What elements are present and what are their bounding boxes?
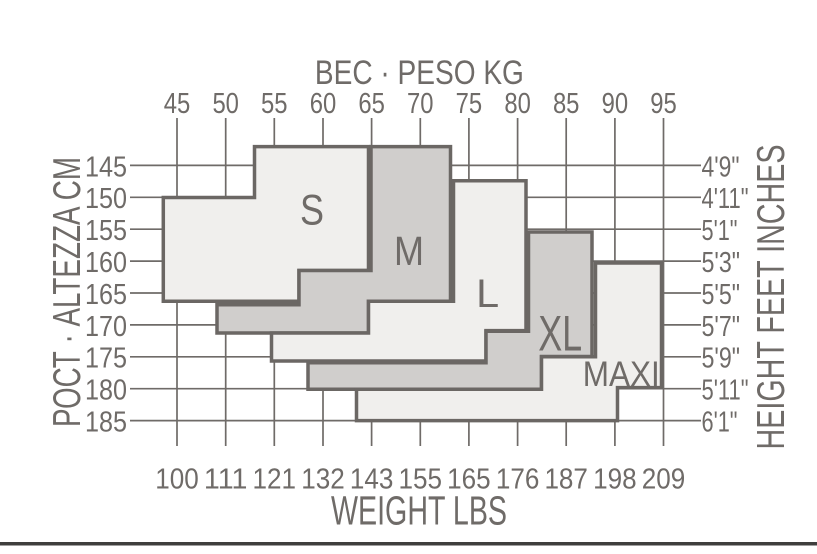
svg-text:5'1": 5'1" xyxy=(702,215,738,247)
svg-text:111: 111 xyxy=(204,464,248,496)
svg-text:L: L xyxy=(476,272,499,316)
svg-text:HEIGHT FEET INCHES: HEIGHT FEET INCHES xyxy=(750,145,793,450)
svg-text:M: M xyxy=(394,228,424,274)
svg-text:XL: XL xyxy=(538,306,582,362)
svg-text:185: 185 xyxy=(85,407,127,439)
svg-text:WEIGHT LBS: WEIGHT LBS xyxy=(331,487,507,533)
svg-text:70: 70 xyxy=(407,88,434,120)
svg-text:50: 50 xyxy=(212,88,239,120)
svg-text:95: 95 xyxy=(650,88,677,120)
svg-text:100: 100 xyxy=(155,464,199,496)
svg-text:ВЕС · PESO KG: ВЕС · PESO KG xyxy=(315,54,524,92)
svg-text:4'11": 4'11" xyxy=(702,183,749,215)
svg-text:160: 160 xyxy=(85,247,127,279)
svg-text:175: 175 xyxy=(85,343,127,375)
svg-text:65: 65 xyxy=(358,88,385,120)
svg-text:5'5": 5'5" xyxy=(702,279,741,311)
svg-text:209: 209 xyxy=(642,464,686,496)
svg-text:145: 145 xyxy=(85,151,127,183)
svg-text:85: 85 xyxy=(553,88,580,120)
svg-text:5'7": 5'7" xyxy=(702,311,741,343)
svg-text:180: 180 xyxy=(85,375,127,407)
svg-text:121: 121 xyxy=(253,464,297,496)
svg-text:4'9": 4'9" xyxy=(702,151,740,183)
svg-text:150: 150 xyxy=(85,183,127,215)
svg-text:165: 165 xyxy=(85,279,127,311)
svg-text:80: 80 xyxy=(504,88,531,120)
svg-text:S: S xyxy=(300,186,324,234)
svg-text:170: 170 xyxy=(85,311,127,343)
svg-text:75: 75 xyxy=(456,88,483,120)
svg-text:MAXI: MAXI xyxy=(583,354,660,394)
svg-text:5'9": 5'9" xyxy=(702,343,741,375)
svg-text:РОСТ · ALTEZZA CM: РОСТ · ALTEZZA CM xyxy=(46,157,89,427)
svg-text:45: 45 xyxy=(164,88,191,120)
svg-text:5'3": 5'3" xyxy=(702,247,741,279)
svg-text:90: 90 xyxy=(602,88,629,120)
svg-text:55: 55 xyxy=(261,88,288,120)
svg-text:155: 155 xyxy=(85,215,127,247)
svg-text:60: 60 xyxy=(310,88,337,120)
svg-text:5'11": 5'11" xyxy=(702,375,749,407)
svg-text:6'1": 6'1" xyxy=(702,407,738,439)
svg-text:198: 198 xyxy=(593,464,637,496)
svg-text:187: 187 xyxy=(544,464,588,496)
